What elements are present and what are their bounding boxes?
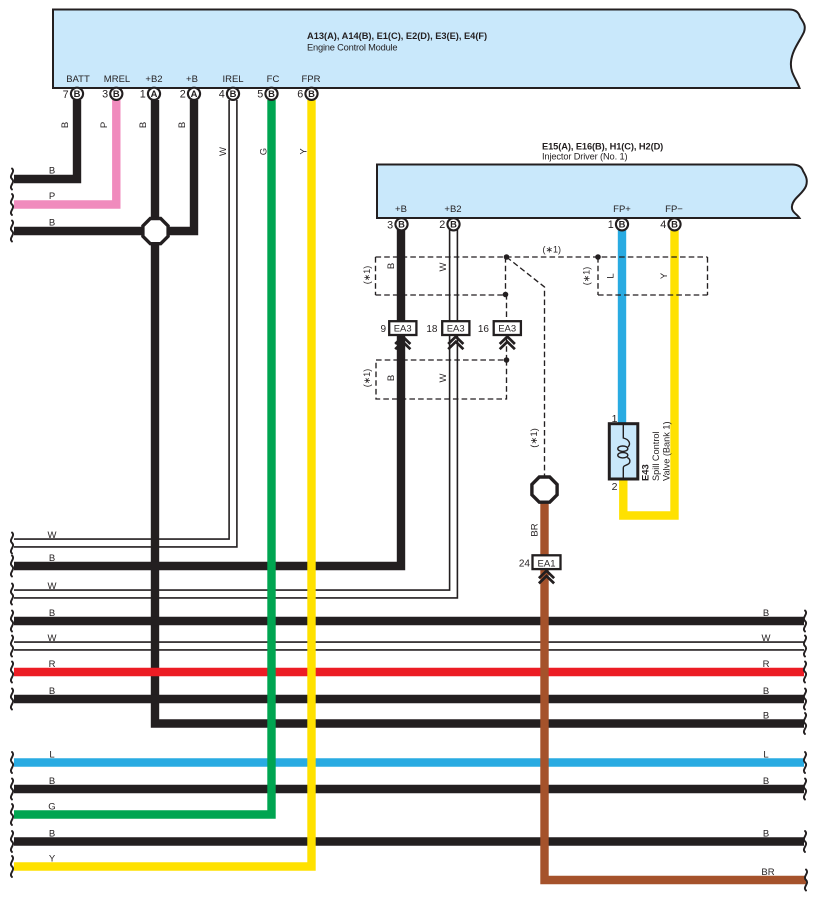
svg-text:(∗1): (∗1)	[543, 245, 562, 255]
svg-text:5: 5	[257, 89, 263, 101]
svg-text:B: B	[308, 88, 315, 99]
svg-text:Engine Control Module: Engine Control Module	[307, 43, 397, 53]
svg-text:B: B	[49, 553, 55, 564]
svg-text:B: B	[49, 829, 55, 840]
svg-text:B: B	[74, 88, 81, 99]
svg-text:BR: BR	[530, 523, 541, 536]
svg-text:W: W	[438, 373, 449, 382]
svg-text:3: 3	[102, 89, 108, 101]
svg-text:B: B	[60, 122, 71, 128]
svg-text:EA1: EA1	[538, 559, 556, 570]
svg-text:BR: BR	[761, 867, 774, 878]
svg-text:Y: Y	[49, 854, 56, 865]
svg-text:+B: +B	[186, 74, 198, 85]
svg-text:E15(A), E16(B), H1(C), H2(D): E15(A), E16(B), H1(C), H2(D)	[542, 142, 663, 152]
svg-text:1: 1	[608, 219, 614, 231]
svg-text:Y: Y	[299, 148, 310, 155]
svg-text:B: B	[398, 219, 405, 230]
svg-text:4: 4	[660, 219, 666, 231]
svg-text:W: W	[48, 530, 57, 541]
svg-text:L: L	[606, 273, 617, 278]
svg-text:EA3: EA3	[447, 324, 465, 335]
svg-text:P: P	[99, 122, 110, 128]
svg-text:2: 2	[612, 481, 618, 493]
svg-text:B: B	[138, 122, 149, 128]
svg-text:B: B	[49, 776, 55, 787]
svg-text:B: B	[230, 88, 237, 99]
svg-text:EA3: EA3	[394, 324, 412, 335]
svg-text:B: B	[763, 776, 769, 787]
svg-text:B: B	[763, 686, 769, 697]
svg-text:1: 1	[612, 413, 618, 425]
svg-text:2: 2	[180, 89, 186, 101]
svg-text:Y: Y	[659, 272, 670, 279]
svg-text:B: B	[49, 686, 55, 697]
svg-text:G: G	[48, 802, 55, 813]
svg-text:B: B	[386, 375, 397, 381]
svg-text:R: R	[49, 659, 56, 670]
svg-text:B: B	[619, 219, 626, 230]
svg-text:24: 24	[519, 559, 531, 570]
svg-text:L: L	[763, 750, 768, 761]
svg-text:B: B	[49, 608, 55, 619]
svg-text:+B2: +B2	[444, 204, 461, 215]
svg-text:B: B	[113, 88, 120, 99]
svg-text:W: W	[218, 147, 229, 156]
svg-text:P: P	[49, 191, 55, 202]
svg-text:W: W	[438, 262, 449, 271]
svg-text:FC: FC	[267, 74, 280, 85]
svg-text:BATT: BATT	[66, 74, 90, 85]
svg-text:FPR: FPR	[302, 74, 321, 85]
svg-text:(∗1): (∗1)	[582, 267, 592, 286]
svg-text:B: B	[49, 218, 55, 229]
svg-text:Injector Driver (No. 1): Injector Driver (No. 1)	[542, 152, 627, 162]
svg-text:W: W	[48, 633, 57, 644]
svg-text:B: B	[763, 608, 769, 619]
svg-text:W: W	[762, 633, 771, 644]
svg-text:(∗1): (∗1)	[362, 266, 372, 285]
svg-text:1: 1	[140, 89, 146, 101]
svg-text:A: A	[151, 88, 158, 99]
svg-text:B: B	[763, 711, 769, 722]
svg-text:MREL: MREL	[104, 74, 130, 85]
svg-text:B: B	[671, 219, 678, 230]
svg-text:(∗1): (∗1)	[362, 369, 372, 388]
svg-text:6: 6	[297, 89, 303, 101]
svg-text:3: 3	[387, 219, 393, 231]
svg-text:A: A	[191, 88, 198, 99]
svg-text:B: B	[177, 122, 188, 128]
svg-text:B: B	[763, 829, 769, 840]
svg-text:G: G	[259, 148, 270, 155]
svg-text:L: L	[49, 750, 54, 761]
svg-text:EA3: EA3	[498, 324, 516, 335]
svg-text:W: W	[48, 581, 57, 592]
svg-text:FP+: FP+	[613, 204, 631, 215]
svg-text:Valve (Bank 1): Valve (Bank 1)	[662, 421, 672, 481]
svg-text:B: B	[450, 219, 457, 230]
svg-text:E43: E43	[640, 464, 651, 481]
svg-text:B: B	[268, 88, 275, 99]
svg-text:9: 9	[380, 324, 386, 335]
svg-text:A13(A), A14(B), E1(C), E2(D),: A13(A), A14(B), E1(C), E2(D), E3(E), E4(…	[307, 31, 487, 41]
svg-text:+B2: +B2	[145, 74, 162, 85]
svg-text:18: 18	[426, 324, 438, 335]
svg-text:16: 16	[478, 324, 490, 335]
svg-text:(∗1): (∗1)	[529, 428, 540, 448]
svg-text:4: 4	[219, 89, 225, 101]
svg-text:B: B	[386, 263, 397, 269]
svg-text:2: 2	[439, 219, 445, 231]
svg-text:B: B	[49, 166, 55, 177]
svg-text:+B: +B	[395, 204, 407, 215]
svg-text:FP−: FP−	[665, 204, 683, 215]
svg-text:R: R	[763, 659, 770, 670]
svg-text:Spill Control: Spill Control	[651, 431, 661, 481]
svg-text:7: 7	[63, 89, 69, 101]
svg-text:IREL: IREL	[222, 74, 243, 85]
